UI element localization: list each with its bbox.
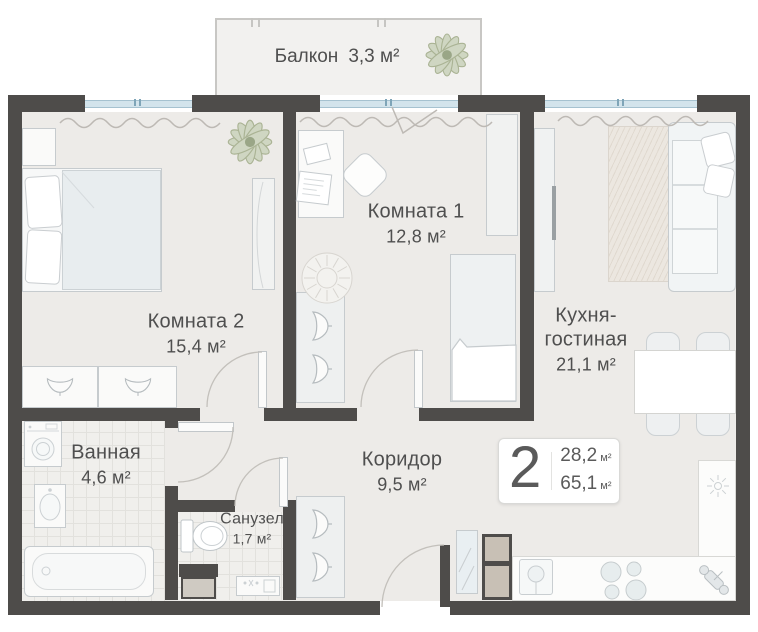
wall-corridor-top bbox=[419, 408, 534, 421]
wall-corridor-top bbox=[8, 408, 200, 421]
corridor-label: Коридор 9,5 м² bbox=[362, 448, 442, 497]
wc-sink bbox=[236, 576, 280, 596]
window-glass bbox=[320, 100, 458, 108]
bathroom-door-leaf bbox=[178, 422, 234, 432]
living-area-unit: м² bbox=[600, 452, 611, 464]
entrance-door-leaf bbox=[440, 545, 450, 607]
single-bed bbox=[450, 254, 516, 402]
cabinet-room1 bbox=[486, 114, 518, 236]
kitchen-label: Кухня-гостиная 21,1 м² bbox=[530, 304, 642, 377]
bed-blanket bbox=[62, 170, 161, 290]
desk bbox=[298, 130, 344, 218]
badge-divider bbox=[551, 452, 552, 490]
dresser bbox=[98, 366, 177, 408]
living-area-value: 28,2 bbox=[560, 445, 597, 466]
total-area-unit: м² bbox=[600, 480, 611, 492]
total-area-row: 65,1м² bbox=[560, 471, 611, 499]
room1-area: 12,8 м² bbox=[368, 225, 465, 249]
sofa-seat-divider bbox=[673, 228, 718, 230]
wall-corridor-top bbox=[264, 408, 357, 421]
corridor-wardrobe bbox=[296, 496, 345, 598]
wc-label: Санузел 1,7 м² bbox=[220, 510, 284, 549]
room2-name: Комната 2 bbox=[148, 310, 245, 334]
fridge bbox=[482, 534, 512, 600]
wall-bathroom-right bbox=[165, 421, 178, 428]
nightstand bbox=[22, 128, 56, 166]
wc-cabinet bbox=[181, 577, 216, 599]
wall-right bbox=[736, 95, 750, 615]
bathroom-name: Ванная bbox=[71, 441, 141, 465]
room2-label: Комната 2 15,4 м² bbox=[148, 310, 245, 359]
wall-bottom bbox=[8, 601, 380, 615]
window-kitchen bbox=[545, 95, 697, 112]
window-glass bbox=[85, 100, 192, 108]
wc-cabinet-top bbox=[179, 564, 218, 577]
corridor-area: 9,5 м² bbox=[362, 473, 442, 497]
dining-table bbox=[634, 350, 736, 414]
tv bbox=[552, 186, 556, 240]
room1-door-leaf bbox=[414, 350, 423, 408]
room2-area: 15,4 м² bbox=[148, 335, 245, 359]
wardrobe-room2 bbox=[252, 178, 275, 290]
rooms-count: 2 bbox=[509, 439, 541, 497]
bed-pillow bbox=[25, 229, 63, 285]
washing-machine bbox=[24, 421, 62, 467]
living-area-row: 28,2м² bbox=[560, 443, 611, 471]
bed-pillow bbox=[24, 175, 63, 229]
wardrobe-room1 bbox=[296, 292, 345, 403]
room1-label: Комната 1 12,8 м² bbox=[368, 200, 465, 249]
window-room2 bbox=[85, 95, 192, 112]
balcony-area: 3,3 м² bbox=[348, 46, 399, 68]
fridge-divider bbox=[485, 561, 509, 566]
balcony-label: Балкон 3,3 м² bbox=[275, 46, 400, 68]
bathroom-vanity-sink bbox=[34, 484, 66, 528]
wall-left bbox=[8, 95, 22, 615]
dresser bbox=[22, 366, 98, 408]
room1-name: Комната 1 bbox=[368, 200, 465, 224]
wall-room1-room2 bbox=[283, 112, 296, 408]
wall-wc-right bbox=[283, 500, 296, 600]
floor-plan: Балкон 3,3 м² Комната 1 12,8 м² Комната … bbox=[0, 0, 758, 632]
corridor-name: Коридор bbox=[362, 448, 442, 472]
balcony-name: Балкон bbox=[275, 46, 339, 68]
room2-door-leaf bbox=[258, 351, 267, 408]
apartment-info-badge: 2 28,2м² 65,1м² bbox=[498, 438, 620, 504]
bathtub-inner bbox=[32, 553, 146, 590]
hall-mirror bbox=[456, 530, 478, 594]
total-area-value: 65,1 bbox=[560, 473, 597, 494]
wc-door-leaf bbox=[279, 457, 288, 507]
wall-top bbox=[458, 95, 545, 112]
kitchen-area: 21,1 м² bbox=[530, 353, 642, 377]
bathroom-label: Ванная 4,6 м² bbox=[71, 441, 141, 490]
bathroom-area: 4,6 м² bbox=[71, 466, 141, 490]
wc-name: Санузел bbox=[220, 510, 284, 529]
wall-bottom bbox=[450, 601, 750, 615]
wc-area: 1,7 м² bbox=[220, 530, 284, 549]
wall-bathroom-right bbox=[165, 486, 178, 600]
window-balcony-door bbox=[320, 95, 458, 112]
kitchen-sink-cabinet bbox=[519, 559, 553, 595]
wall-top bbox=[192, 95, 320, 112]
kitchen-name: Кухня-гостиная bbox=[530, 304, 642, 352]
window-glass bbox=[545, 100, 697, 108]
